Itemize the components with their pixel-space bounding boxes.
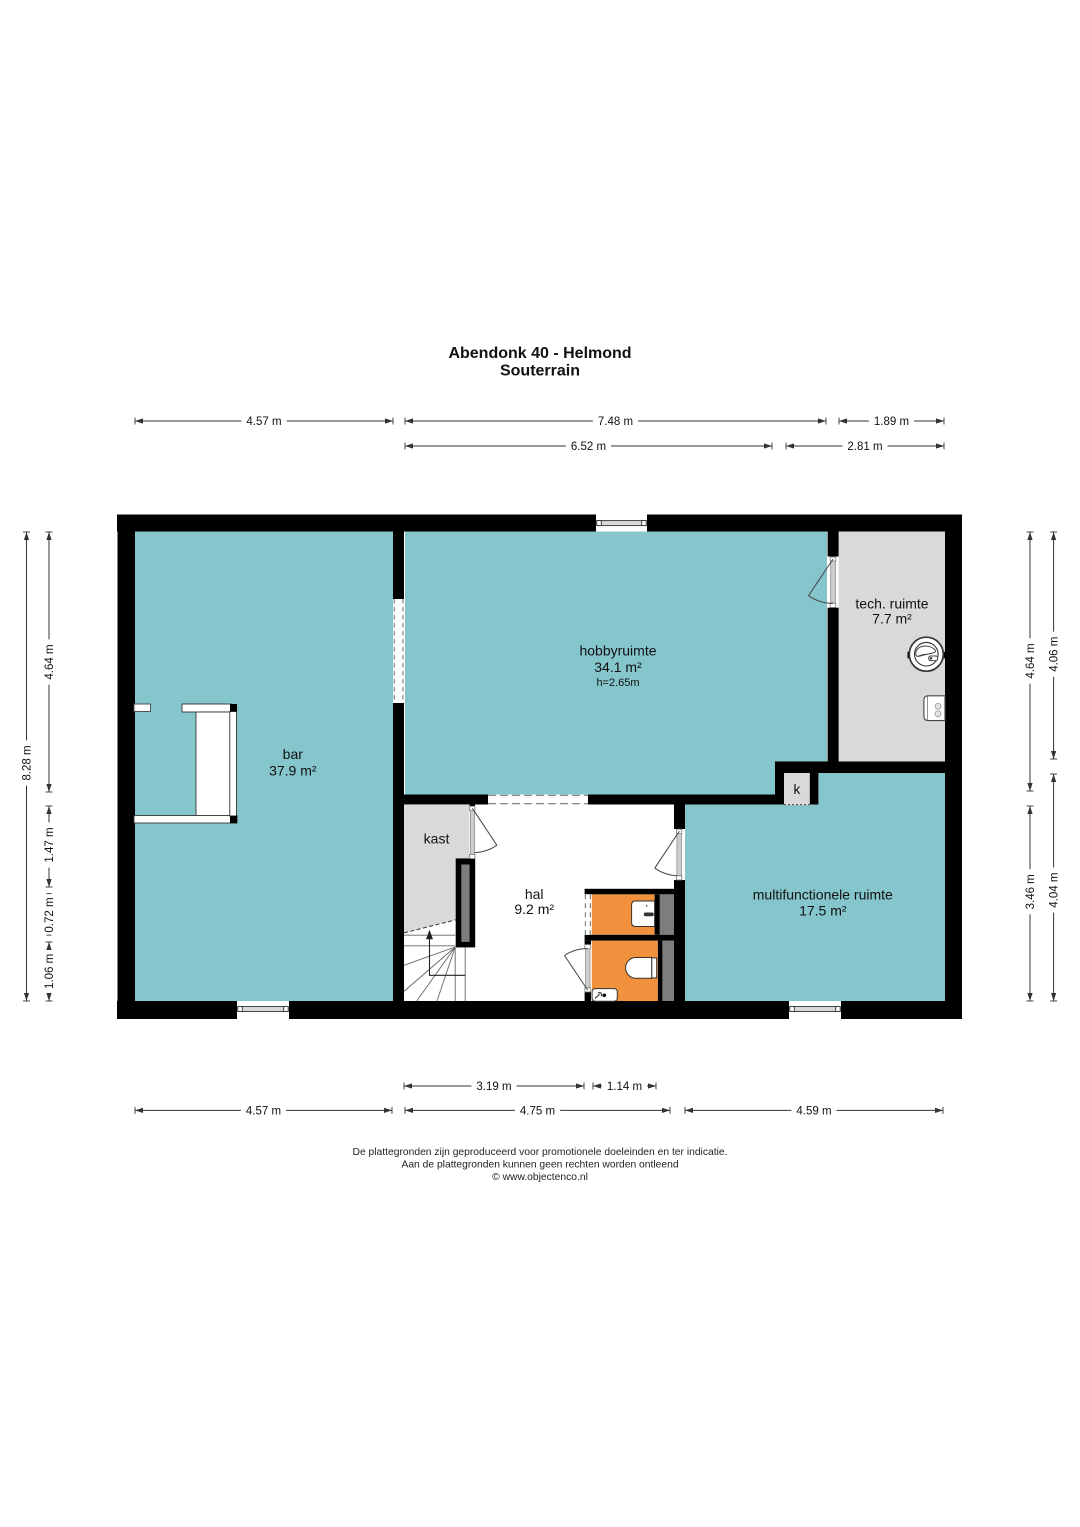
svg-text:3.19 m: 3.19 m <box>476 1081 511 1093</box>
svg-text:tech. ruimte: tech. ruimte <box>855 596 928 612</box>
svg-text:7.7 m²: 7.7 m² <box>872 611 912 627</box>
svg-text:37.9 m²: 37.9 m² <box>269 763 317 779</box>
svg-text:4.57 m: 4.57 m <box>246 1105 281 1117</box>
svg-text:2.81 m: 2.81 m <box>847 441 882 453</box>
svg-text:4.64 m: 4.64 m <box>1025 643 1037 678</box>
svg-text:© www.objectenco.nl: © www.objectenco.nl <box>492 1172 588 1183</box>
svg-text:8.28 m: 8.28 m <box>22 745 34 780</box>
svg-text:Abendonk 40 - Helmond: Abendonk 40 - Helmond <box>448 345 631 362</box>
svg-text:4.64 m: 4.64 m <box>44 644 56 679</box>
svg-text:4.57 m: 4.57 m <box>246 416 281 428</box>
svg-text:0.72 m: 0.72 m <box>44 897 56 932</box>
svg-text:4.75 m: 4.75 m <box>520 1105 555 1117</box>
svg-text:1.89 m: 1.89 m <box>874 416 909 428</box>
svg-text:4.59 m: 4.59 m <box>796 1105 831 1117</box>
svg-text:4.06 m: 4.06 m <box>1049 637 1061 672</box>
svg-text:1.14 m: 1.14 m <box>607 1081 642 1093</box>
svg-text:kast: kast <box>424 831 450 847</box>
svg-text:34.1 m²: 34.1 m² <box>594 659 642 675</box>
svg-text:hal: hal <box>525 886 544 902</box>
svg-text:7.48 m: 7.48 m <box>598 416 633 428</box>
svg-text:3.46 m: 3.46 m <box>1025 874 1037 909</box>
svg-text:multifunctionele ruimte: multifunctionele ruimte <box>753 887 893 903</box>
svg-text:h=2.65m: h=2.65m <box>596 677 639 689</box>
svg-text:9.2 m²: 9.2 m² <box>514 901 554 917</box>
svg-text:hobbyruimte: hobbyruimte <box>579 643 656 659</box>
svg-text:Aan de plattegronden kunnen ge: Aan de plattegronden kunnen geen rechten… <box>401 1160 678 1171</box>
svg-text:6.52 m: 6.52 m <box>571 441 606 453</box>
svg-text:17.5 m²: 17.5 m² <box>799 903 847 919</box>
svg-text:4.04 m: 4.04 m <box>1049 873 1061 908</box>
svg-text:1.47 m: 1.47 m <box>44 827 56 862</box>
svg-text:De plattegronden zijn geproduc: De plattegronden zijn geproduceerd voor … <box>353 1147 728 1158</box>
svg-text:Souterrain: Souterrain <box>500 363 580 380</box>
svg-text:bar: bar <box>283 746 304 762</box>
svg-text:1.06 m: 1.06 m <box>44 954 56 989</box>
svg-text:k: k <box>794 782 801 797</box>
